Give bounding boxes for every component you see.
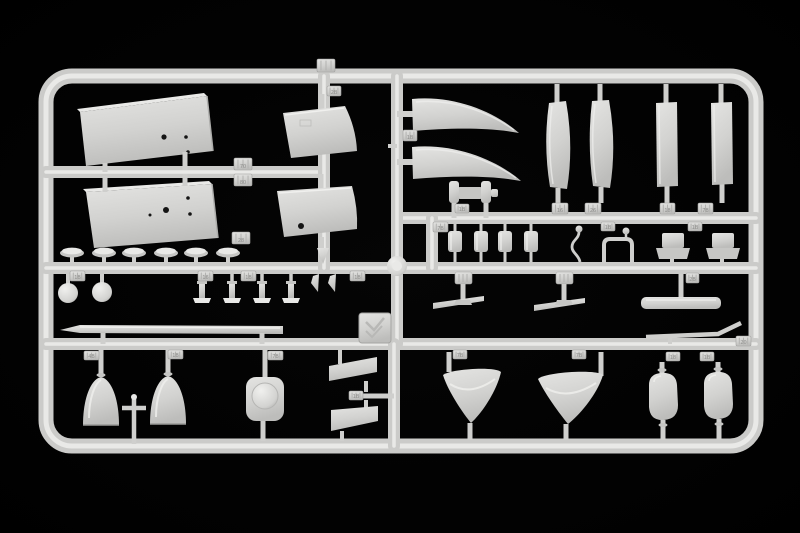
part-number-tag: 7B xyxy=(268,351,283,360)
part-number-label: 1B xyxy=(74,275,81,281)
part-number-label: 1B xyxy=(692,225,699,231)
part-number-tag: 7B xyxy=(453,350,467,359)
part-number-label: 16 xyxy=(557,208,563,214)
part-number-tag xyxy=(317,59,335,72)
part-number-label: 1B xyxy=(245,275,252,281)
part-number-tag: 1B xyxy=(168,350,183,359)
part-number-tag: 1B xyxy=(403,130,417,141)
part-number-label: 7B xyxy=(576,353,583,359)
part-number-tag: 2B xyxy=(327,86,341,96)
part-number-tag: 4B xyxy=(84,351,99,360)
part-number-label: 7B xyxy=(457,353,464,359)
part-number-tag: 2B xyxy=(686,273,699,283)
part-number-label: 28 xyxy=(238,238,244,244)
part-number-tag: 1B xyxy=(688,222,702,231)
part-number-label: 1B xyxy=(605,225,612,231)
part-number-tag: 18 xyxy=(666,352,680,361)
part-number-label: 16 xyxy=(202,275,208,281)
part-number-label: 1B xyxy=(353,394,360,400)
part-number-label: 1B xyxy=(459,207,466,213)
part-number-tag: 1B xyxy=(700,352,714,361)
part-number-tag: 18 xyxy=(660,203,675,214)
part-number-label: 20 xyxy=(740,340,746,346)
part-number-label: 1B xyxy=(354,275,361,281)
part-number-label: 70 xyxy=(240,164,246,170)
part-number-tag: 1B xyxy=(241,271,256,281)
part-number-tag: 1B xyxy=(350,271,365,281)
part-number-label: 7B xyxy=(437,226,444,232)
part-number-label: 2B xyxy=(331,90,338,96)
part-number-tag: 70 xyxy=(234,158,252,170)
part-number-tag: 20 xyxy=(736,336,751,346)
part-number-label: 7B xyxy=(702,208,709,214)
part-number-label: 1B xyxy=(407,135,414,141)
part-number-tag: 80 xyxy=(234,174,252,186)
part-number-tag: 1B xyxy=(601,222,615,231)
part-number-tag: 7B xyxy=(572,350,586,359)
part-number-label: 18 xyxy=(664,208,670,214)
part-number-tag: 26 xyxy=(585,203,601,214)
part-number-label: 26 xyxy=(590,208,596,214)
storage-box-bottom xyxy=(83,174,218,248)
part-number-label: 80 xyxy=(240,180,246,186)
part-number-tag: 1B xyxy=(349,391,363,400)
part-number-tag: 7B xyxy=(433,222,448,232)
part-number-tag: 28 xyxy=(232,232,250,244)
part-number-label: 1B xyxy=(172,353,179,359)
part-number-label: 18 xyxy=(670,355,676,361)
part-number-tag: 16 xyxy=(198,271,213,281)
part-number-tag: 16 xyxy=(552,203,568,214)
sprue-photo: 2B7080281B161B1B1B1B7B1626187B1B1B2B204B… xyxy=(0,0,800,533)
part-number-label: 7B xyxy=(272,354,279,360)
part-number-tag: 7B xyxy=(698,203,713,214)
runner-junction-boss xyxy=(387,256,407,276)
part-number-tag: 1B xyxy=(70,271,85,281)
part-number-label: 2B xyxy=(689,277,696,283)
logo-plaque xyxy=(359,313,391,343)
part-number-label: 1B xyxy=(704,355,711,361)
part-number-tag: 1B xyxy=(455,204,469,213)
part-number-label: 4B xyxy=(88,354,95,360)
sprue-svg: 2B7080281B161B1B1B1B7B1626187B1B1B2B204B… xyxy=(0,0,800,533)
